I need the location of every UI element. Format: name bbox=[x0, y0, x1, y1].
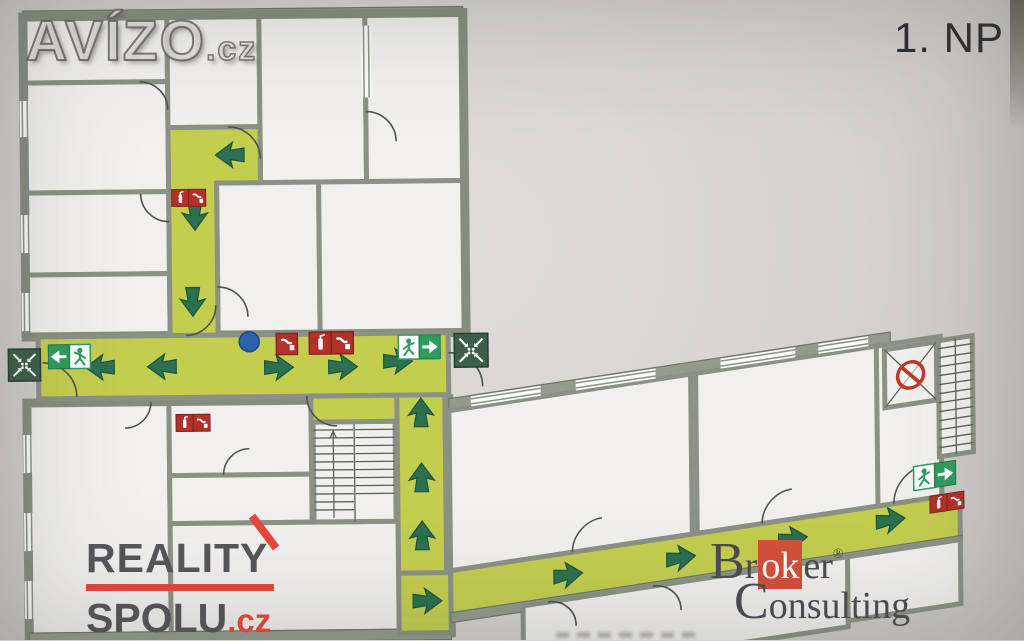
extinguisher-sign-icon bbox=[172, 189, 189, 206]
hydrant-sign-icon bbox=[331, 332, 353, 354]
reality-logo-line1: REALITY bbox=[86, 538, 274, 579]
room bbox=[696, 345, 882, 533]
room bbox=[259, 14, 367, 183]
staircase bbox=[313, 421, 396, 522]
registered-mark: ® bbox=[833, 547, 844, 562]
room bbox=[169, 400, 312, 475]
room bbox=[25, 192, 170, 276]
room bbox=[23, 82, 168, 194]
floor-label: 1. NP bbox=[894, 14, 1004, 62]
reality-spolu-watermark: REALITY SPOLU.cz bbox=[86, 538, 274, 639]
reality-tld: .cz bbox=[227, 602, 271, 639]
extinguisher-sign-icon bbox=[309, 332, 331, 354]
you-are-here-sign-icon bbox=[239, 332, 259, 352]
room bbox=[365, 12, 465, 181]
assembly-sign-icon bbox=[8, 349, 40, 381]
hydrant-sign-icon bbox=[189, 189, 206, 206]
room bbox=[170, 474, 312, 523]
room bbox=[319, 180, 467, 334]
extinguisher-sign-icon bbox=[930, 494, 947, 514]
exit-sign-right-icon bbox=[398, 335, 440, 359]
avizo-watermark: AVÍZO.cz bbox=[26, 8, 257, 74]
reality-logo-line2: SPOLU.cz bbox=[86, 598, 274, 639]
cut-off-caption bbox=[556, 632, 696, 638]
hydrant-sign-icon bbox=[947, 491, 964, 511]
avizo-logo-text: AVÍZO bbox=[26, 9, 206, 73]
photo-edge-shadow bbox=[1010, 0, 1024, 130]
assembly-sign-icon bbox=[454, 333, 488, 367]
corridor bbox=[311, 395, 397, 422]
hydrant-sign-icon bbox=[193, 414, 210, 431]
avizo-tld: .cz bbox=[206, 30, 257, 68]
room bbox=[217, 182, 321, 335]
broker-logo-line2: Consulting bbox=[734, 576, 910, 628]
exit-sign-left-icon bbox=[48, 344, 90, 368]
staircase bbox=[938, 336, 973, 457]
room bbox=[26, 274, 171, 338]
extinguisher-sign-icon bbox=[176, 414, 193, 431]
hydrant-sign-icon bbox=[276, 333, 297, 354]
reality-logo-underline bbox=[86, 584, 274, 591]
broker-consulting-watermark: Broker® Consulting bbox=[710, 536, 910, 628]
